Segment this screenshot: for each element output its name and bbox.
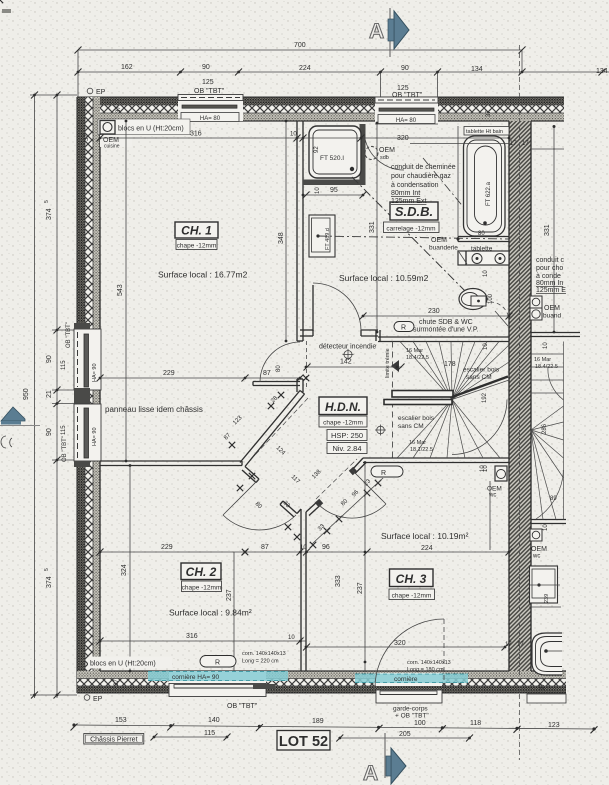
svg-text:blocs en U (Ht:20cm): blocs en U (Ht:20cm) — [90, 661, 156, 668]
svg-text:700: 700 — [294, 42, 306, 49]
svg-text:90: 90 — [46, 355, 53, 363]
svg-text:chape -12mm: chape -12mm — [177, 243, 217, 250]
svg-text:R: R — [381, 470, 386, 477]
svg-text:10: 10 — [543, 342, 549, 349]
svg-text:80mm In: 80mm In — [536, 280, 563, 287]
svg-text:115: 115 — [204, 730, 215, 737]
svg-text:16 Mar: 16 Mar — [534, 357, 551, 363]
svg-text:EP: EP — [96, 89, 106, 96]
svg-text:Châssis Pierret: Châssis Pierret — [90, 737, 138, 744]
svg-text:Niv. 2.84: Niv. 2.84 — [332, 444, 361, 453]
svg-text:10: 10 — [483, 270, 489, 277]
svg-text:18.1/22.5: 18.1/22.5 — [410, 447, 433, 453]
svg-text:125: 125 — [202, 79, 214, 86]
svg-text:316: 316 — [186, 633, 198, 640]
svg-text:surmontée d'une V.P.: surmontée d'une V.P. — [413, 327, 479, 334]
svg-text:125mm Ext: 125mm Ext — [391, 198, 426, 205]
svg-text:16 Mar: 16 Mar — [406, 348, 423, 354]
svg-text:125mm E: 125mm E — [536, 287, 566, 294]
svg-text:10: 10 — [483, 343, 489, 350]
svg-text:CH. 1: CH. 1 — [181, 224, 212, 238]
svg-text:conduit de cheminée: conduit de cheminée — [391, 164, 456, 171]
svg-text:sans CM: sans CM — [398, 423, 424, 430]
svg-text:limite trémie: limite trémie — [385, 348, 391, 378]
svg-text:374: 374 — [46, 208, 53, 220]
svg-text:carrelage -12mm: carrelage -12mm — [386, 226, 435, 233]
svg-text:950: 950 — [23, 388, 30, 400]
svg-text:OEM: OEM — [487, 486, 502, 493]
svg-text:89: 89 — [550, 496, 557, 502]
svg-text:125: 125 — [397, 85, 409, 92]
svg-text:237: 237 — [357, 582, 364, 594]
svg-text:320: 320 — [397, 135, 409, 142]
svg-text:230: 230 — [428, 308, 440, 315]
svg-text:17: 17 — [510, 141, 517, 147]
svg-text:10: 10 — [290, 132, 297, 138]
svg-text:324: 324 — [121, 564, 128, 576]
svg-text:115: 115 — [61, 425, 67, 435]
svg-text:blocs en U (Ht:20cm): blocs en U (Ht:20cm) — [118, 126, 184, 133]
svg-text:FT 622.a: FT 622.a — [486, 181, 492, 206]
svg-text:95: 95 — [330, 187, 338, 194]
svg-text:115: 115 — [61, 360, 67, 370]
svg-text:OEM: OEM — [544, 305, 560, 312]
svg-text:pour cho: pour cho — [536, 265, 563, 272]
svg-text:90: 90 — [401, 65, 409, 72]
svg-text:escalier bois: escalier bois — [398, 415, 435, 422]
svg-text:21: 21 — [46, 390, 53, 398]
svg-text:229: 229 — [163, 370, 175, 377]
svg-text:224: 224 — [299, 65, 311, 72]
svg-text:OEM: OEM — [431, 237, 447, 244]
svg-text:HA= 90: HA= 90 — [92, 364, 98, 383]
svg-text:Surface local : 9.84m²: Surface local : 9.84m² — [169, 608, 252, 618]
svg-text:sans CM: sans CM — [466, 374, 492, 381]
svg-text:374: 374 — [46, 576, 53, 588]
svg-text:+ OB "TBT": + OB "TBT" — [395, 713, 429, 720]
svg-text:HA= 80: HA= 80 — [396, 118, 417, 124]
svg-text:316: 316 — [190, 131, 202, 138]
svg-text:EP: EP — [93, 696, 103, 703]
svg-text:17: 17 — [517, 642, 524, 648]
svg-text:Surface local : 10.59m2: Surface local : 10.59m2 — [339, 273, 429, 283]
svg-text:37: 37 — [540, 683, 546, 690]
svg-text:CH. 3: CH. 3 — [396, 572, 427, 586]
svg-text:HA= 80: HA= 80 — [200, 116, 221, 122]
svg-text:tablette Ht bain: tablette Ht bain — [466, 129, 503, 135]
svg-text:140: 140 — [208, 717, 220, 724]
svg-text:37: 37 — [486, 110, 492, 117]
svg-text:90: 90 — [46, 428, 53, 436]
svg-text:Surface local : 10.19m²: Surface local : 10.19m² — [381, 531, 469, 541]
svg-text:90: 90 — [202, 64, 210, 71]
svg-text:buanderie: buanderie — [429, 245, 458, 252]
svg-text:16 Mar: 16 Mar — [409, 440, 426, 446]
svg-text:chape -12mm: chape -12mm — [392, 593, 432, 600]
svg-text:17: 17 — [522, 141, 529, 147]
svg-text:escalier bois: escalier bois — [463, 367, 500, 374]
svg-text:80mm Int: 80mm Int — [391, 190, 420, 197]
svg-text:331: 331 — [369, 221, 376, 233]
svg-text:OB "TBT": OB "TBT" — [227, 703, 258, 710]
svg-text:80: 80 — [276, 365, 282, 372]
svg-text:conduit c: conduit c — [536, 257, 565, 264]
svg-text:H.D.N.: H.D.N. — [325, 400, 361, 414]
svg-text:chape -12mm: chape -12mm — [323, 420, 363, 427]
svg-text:OB "TBT": OB "TBT" — [194, 88, 225, 95]
svg-text:5: 5 — [44, 200, 50, 203]
svg-text:10: 10 — [480, 465, 486, 472]
svg-text:garde-corps: garde-corps — [393, 706, 428, 713]
svg-text:192: 192 — [482, 392, 488, 403]
svg-text:153: 153 — [115, 717, 127, 724]
svg-text:348: 348 — [278, 232, 285, 244]
svg-text:R: R — [215, 660, 220, 667]
svg-text:37: 37 — [114, 679, 120, 686]
svg-text:panneau lisse idem châssis: panneau lisse idem châssis — [105, 405, 203, 414]
svg-text:286: 286 — [542, 423, 548, 434]
svg-text:237: 237 — [226, 589, 233, 601]
svg-text:118: 118 — [470, 720, 481, 727]
svg-text:142: 142 — [340, 359, 352, 366]
svg-text:Surface local : 16.77m2: Surface local : 16.77m2 — [158, 270, 248, 280]
svg-text:229: 229 — [161, 544, 173, 551]
svg-text:S.D.B.: S.D.B. — [395, 204, 433, 219]
svg-text:162: 162 — [121, 64, 133, 71]
svg-text:189: 189 — [312, 718, 324, 725]
svg-text:205: 205 — [399, 731, 411, 738]
svg-text:123: 123 — [548, 722, 560, 729]
svg-text:5: 5 — [44, 568, 50, 571]
svg-text:320: 320 — [394, 640, 406, 647]
svg-text:buand: buand — [543, 313, 561, 320]
svg-text:CH. 2: CH. 2 — [186, 565, 217, 579]
svg-text:cornière HA= 90: cornière HA= 90 — [172, 674, 220, 681]
svg-text:10: 10 — [315, 187, 321, 194]
svg-text:pour chaudière gaz: pour chaudière gaz — [391, 173, 451, 180]
svg-text:cuisine: cuisine — [104, 144, 120, 150]
svg-text:134: 134 — [471, 66, 483, 73]
svg-text:R: R — [401, 325, 406, 332]
svg-text:37: 37 — [84, 134, 90, 141]
svg-text:100: 100 — [414, 720, 426, 727]
svg-text:87: 87 — [263, 370, 271, 377]
svg-text:224: 224 — [421, 545, 433, 552]
svg-text:331: 331 — [544, 224, 551, 236]
svg-text:333: 333 — [335, 575, 342, 587]
svg-text:A: A — [363, 762, 378, 785]
svg-text:543: 543 — [117, 284, 124, 296]
svg-text:corn. 140x140x13: corn. 140x140x13 — [242, 651, 286, 657]
svg-text:A: A — [369, 20, 384, 43]
svg-text:corn. 140x140x13: corn. 140x140x13 — [407, 660, 451, 666]
svg-text:10: 10 — [288, 635, 295, 641]
svg-text:chape -12mm: chape -12mm — [182, 585, 222, 592]
svg-text:10: 10 — [543, 524, 549, 531]
svg-text:chute SDB & WC: chute SDB & WC — [419, 319, 473, 326]
svg-text:HSP: 250: HSP: 250 — [331, 431, 363, 440]
svg-text:OB "TBT": OB "TBT" — [62, 436, 68, 462]
svg-text:LOT 52: LOT 52 — [279, 734, 328, 750]
svg-text:80: 80 — [478, 231, 485, 237]
svg-text:10: 10 — [300, 545, 307, 551]
svg-text:OEM: OEM — [379, 147, 395, 154]
svg-text:Long = 220 cm: Long = 220 cm — [242, 659, 279, 665]
svg-text:18.4/22.5: 18.4/22.5 — [535, 364, 558, 370]
svg-text:FT 489.d: FT 489.d — [325, 228, 331, 250]
svg-text:18.4/22.5: 18.4/22.5 — [406, 355, 429, 361]
svg-text:OB "TBT": OB "TBT" — [66, 322, 72, 348]
svg-text:OEM: OEM — [531, 546, 547, 553]
svg-text:cornière: cornière — [394, 676, 418, 683]
svg-text:37: 37 — [116, 106, 122, 113]
svg-text:sdb: sdb — [380, 155, 389, 161]
svg-text:Long = 180 cm: Long = 180 cm — [407, 667, 444, 673]
svg-text:à conde: à conde — [536, 273, 561, 280]
svg-text:239: 239 — [544, 594, 550, 603]
svg-text:wc: wc — [488, 493, 496, 499]
svg-text:FT 520.I: FT 520.I — [320, 155, 344, 162]
svg-text:OB "TBT": OB "TBT" — [392, 92, 423, 99]
svg-text:HA= 90: HA= 90 — [92, 428, 98, 447]
svg-text:wc: wc — [532, 554, 540, 560]
svg-text:87: 87 — [261, 544, 269, 551]
svg-text:178: 178 — [444, 361, 456, 368]
svg-text:à condensation: à condensation — [391, 182, 439, 189]
svg-text:92: 92 — [314, 146, 320, 153]
svg-text:96: 96 — [322, 544, 330, 551]
